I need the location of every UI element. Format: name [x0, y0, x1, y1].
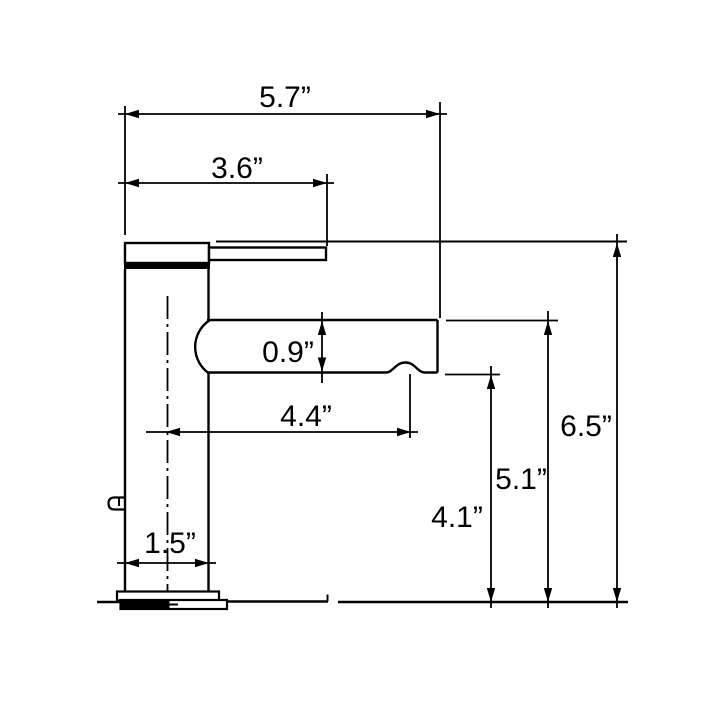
body-clip [109, 498, 126, 510]
arrowhead-left [125, 559, 139, 567]
arrowhead-down [318, 358, 326, 372]
arrowhead-down [544, 588, 552, 602]
arrowhead-up [544, 321, 552, 335]
body-width-label: 1.5” [144, 527, 196, 560]
dimension-height-spout-top [446, 311, 558, 608]
spout-thickness-label: 0.9” [262, 336, 314, 369]
body-cap-band [124, 263, 210, 270]
dimension-body-width [117, 559, 216, 567]
handle-lever [209, 248, 326, 261]
arrowhead-left [125, 179, 139, 187]
dimension-height-spout-bottom [445, 366, 500, 608]
height-spout-bottom-label: 4.1” [431, 501, 483, 534]
faucet-dimension-drawing-page: 5.7” 3.6” 0.9” 4.4” [0, 0, 720, 720]
arrowhead-up [318, 321, 326, 335]
arrowhead-up [613, 243, 621, 257]
arrowhead-up [487, 375, 495, 389]
handle-reach-label: 3.6” [211, 152, 263, 185]
arrowhead-right [397, 428, 411, 436]
base-gasket-dark [121, 600, 170, 610]
spout-reach-label: 4.4” [280, 400, 332, 433]
arrowhead-down [487, 588, 495, 602]
body-cap-outline [125, 243, 209, 263]
arrowhead-right [426, 110, 440, 118]
arrowhead-right [195, 559, 209, 567]
overall-height-label: 6.5” [560, 410, 612, 443]
technical-drawing-canvas: 5.7” 3.6” 0.9” 4.4” [0, 0, 720, 720]
overall-spout-width-label: 5.7” [259, 81, 311, 114]
spout-back-curve [195, 321, 208, 373]
dimension-overall-height [613, 234, 621, 608]
dimension-overall-spout-width [118, 102, 447, 318]
arrowhead-down [613, 588, 621, 602]
arrowhead-left [125, 110, 139, 118]
height-spout-top-label: 5.1” [495, 463, 547, 496]
arrowhead-right [313, 179, 327, 187]
